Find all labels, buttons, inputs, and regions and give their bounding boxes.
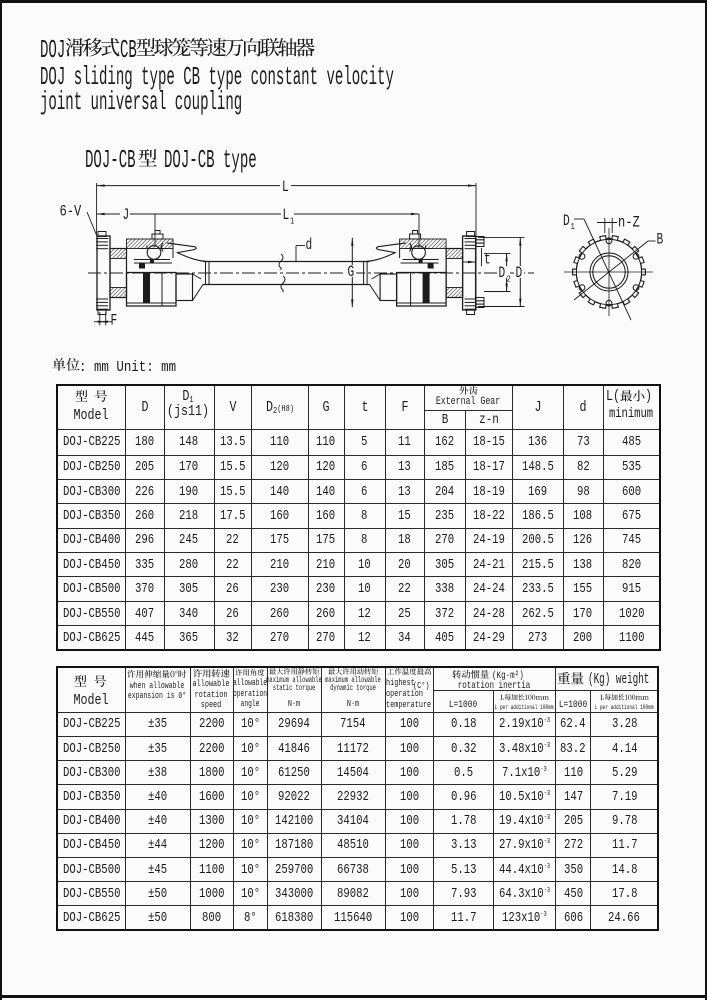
svg-text:F: F: [111, 313, 118, 330]
svg-text:L: L: [283, 208, 290, 225]
svg-text:B: B: [657, 232, 664, 249]
svg-text:D: D: [516, 266, 523, 283]
svg-text:t: t: [484, 252, 491, 269]
svg-text:d: d: [306, 238, 313, 255]
svg-text:L: L: [282, 180, 289, 197]
svg-text:6-V: 6-V: [60, 203, 82, 221]
svg-text:1: 1: [571, 222, 575, 232]
svg-text:n-Z: n-Z: [618, 214, 640, 232]
svg-text:G: G: [348, 265, 355, 282]
svg-text:1: 1: [290, 217, 294, 227]
svg-text:J: J: [123, 208, 130, 225]
svg-text:D: D: [499, 266, 506, 283]
svg-text:D: D: [563, 214, 570, 231]
svg-text:2: 2: [507, 275, 511, 285]
